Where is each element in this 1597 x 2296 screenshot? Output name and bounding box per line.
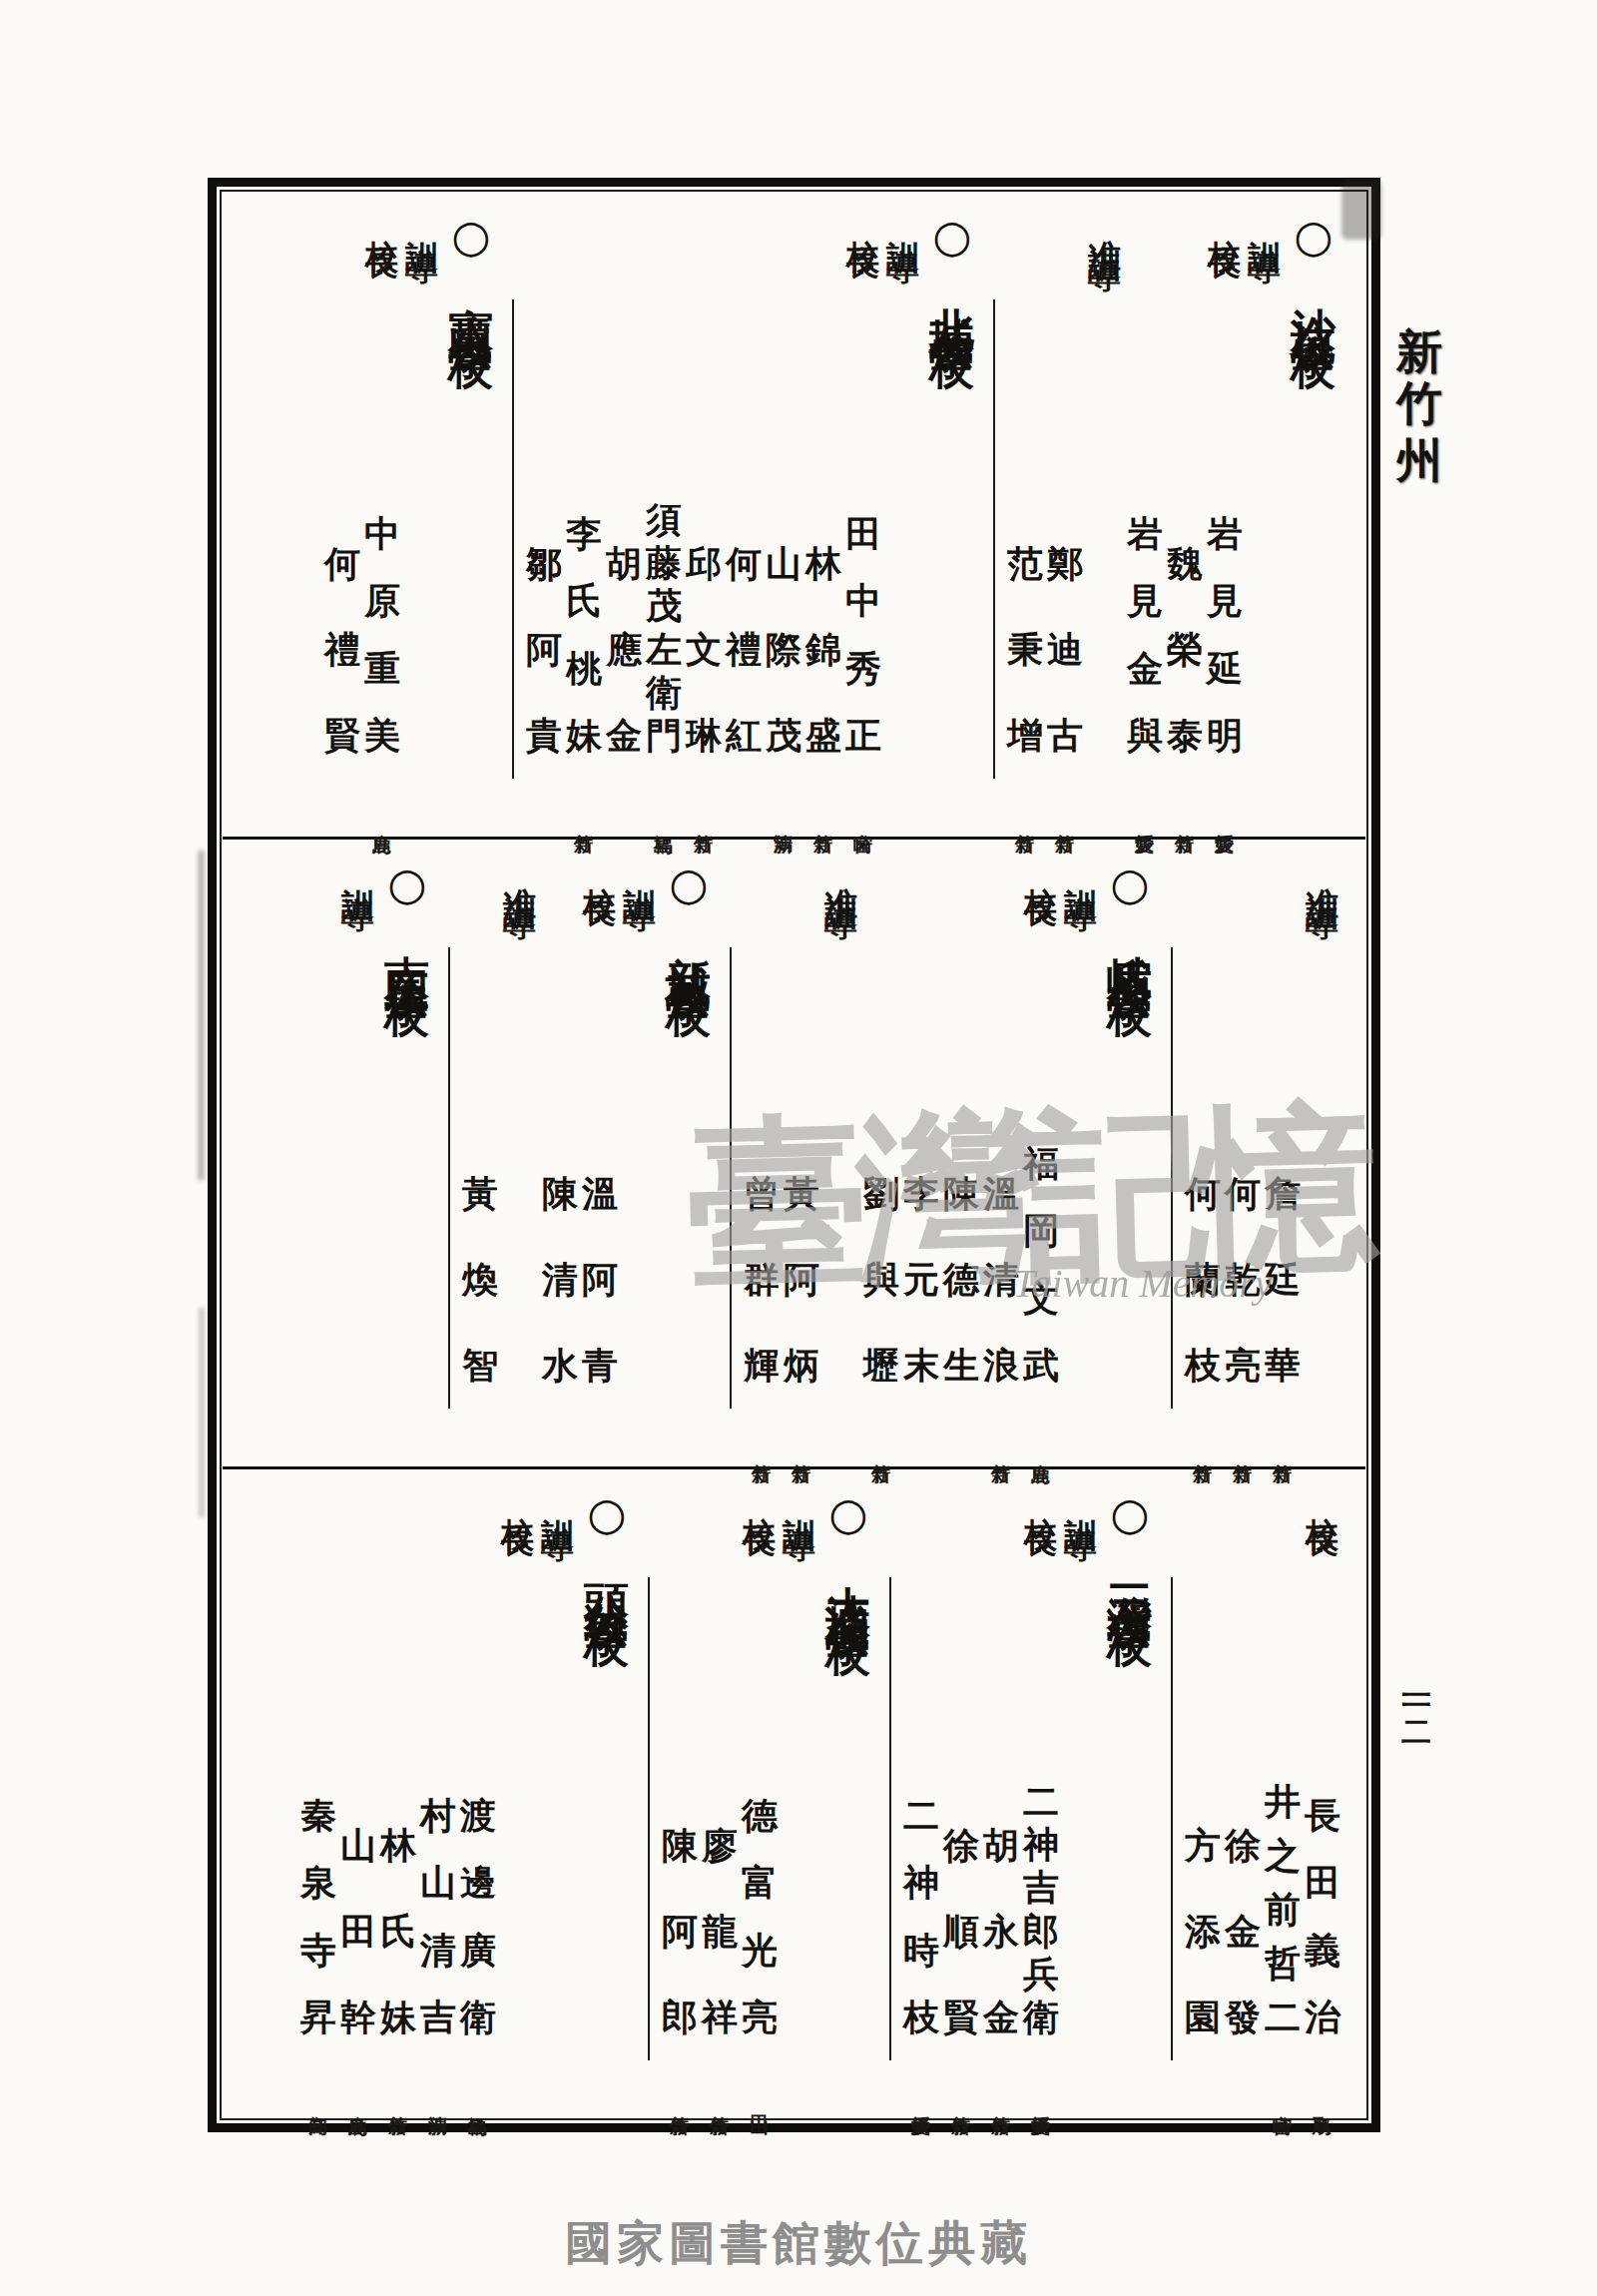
role-label: 訓導 [342, 861, 375, 877]
staff-column: 廖龍祥新竹 [701, 1485, 739, 2110]
section-divider-line [648, 1577, 650, 2060]
staff-column: 須藤茂左衛門福島 [645, 208, 683, 829]
teacher-name: 陳阿郎 [662, 1827, 698, 2034]
section-divider-line [448, 947, 450, 1409]
section-divider [444, 856, 452, 1458]
teacher-name: 范秉增 [1007, 545, 1043, 753]
scan-smudge [199, 1308, 205, 1517]
role-label: 訓導 [1065, 861, 1098, 877]
page-frame: ○沙坑公學校訓導校長岩見延明愛媛魏榮泰新竹岩見金與愛媛准訓導鄭迪古新竹范秉增新竹… [208, 178, 1380, 2132]
role-label: 訓導 [624, 861, 657, 877]
teacher-name: 岩見延明 [1207, 515, 1243, 753]
school-header-text: ○寶山公學校 [449, 210, 494, 316]
role-label-column: 准訓導 [822, 856, 860, 1458]
origin-note: 新竹 [575, 819, 594, 821]
school-header: ○南庄公學校 [380, 856, 434, 1458]
page-number: 一一二 [1395, 1679, 1436, 1709]
teacher-name: 山田幹 [340, 1827, 376, 2034]
role-label: 校長 [847, 214, 880, 230]
school-header-text: ○沙坑公學校 [1292, 210, 1336, 316]
staff-column: 何禮賢 [323, 208, 361, 829]
role-label-column: 准訓導 [1304, 856, 1341, 1458]
role-label-column: 准訓導 [501, 856, 539, 1458]
school-header: ○新城公學校 [662, 856, 716, 1458]
origin-note: 新潟 [429, 2100, 448, 2102]
role-label: 訓導 [887, 214, 920, 230]
teacher-name: 黃煥智 [462, 1175, 498, 1383]
role-label: 訓導 [1065, 1491, 1098, 1507]
origin-note: 新竹 [711, 2100, 730, 2102]
origin-note: 宮崎 [1274, 2100, 1293, 2102]
school-header-text: ○頭分公學校 [585, 1487, 630, 1594]
teacher-name: 方添園 [1185, 1827, 1221, 2034]
role-label-column: 訓導 [339, 856, 377, 1458]
section-divider [989, 208, 997, 829]
staff-column: 校長中原重美鹿島 [363, 208, 401, 829]
role-label: 訓導 [406, 214, 439, 230]
section-divider [1167, 1485, 1175, 2110]
teacher-name: 林錦盛 [805, 545, 841, 753]
origin-note: 愛媛 [1216, 819, 1235, 821]
school-header: ○北埔公學校 [925, 208, 979, 829]
staff-column: 何乾亮新竹 [1224, 856, 1262, 1458]
staff-column: 何禮紅 [725, 208, 763, 829]
staff-column: 邱文琳新竹 [685, 208, 723, 829]
role-label-column: 訓導 [1246, 208, 1284, 829]
staff-column: 李氏桃妹新竹 [565, 208, 603, 829]
section-divider [726, 856, 734, 1458]
staff-column: 陳德生 [942, 856, 980, 1458]
staff-column: 詹廷華新竹 [1264, 856, 1302, 1458]
origin-note: 新潟 [775, 819, 794, 821]
teacher-name: 徐金發 [1225, 1827, 1261, 2034]
origin-note: 新竹 [952, 2100, 971, 2102]
origin-note: 新竹 [1056, 819, 1075, 821]
staff-column: 徐金發 [1224, 1485, 1262, 2110]
origin-note: 新竹 [1176, 819, 1195, 821]
role-label: 准訓導 [825, 861, 858, 885]
role-label-column: 訓導 [621, 856, 659, 1458]
teacher-name: 溫阿青 [582, 1175, 618, 1383]
teacher-name: 陳德生 [943, 1175, 979, 1383]
origin-note: 鹿島 [349, 2100, 368, 2102]
section-divider-line [730, 947, 732, 1409]
origin-note: 福島 [469, 2100, 488, 2102]
origin-note: 新竹 [753, 1448, 772, 1450]
scan-smudge [198, 851, 205, 1180]
role-label: 校長 [1307, 1491, 1339, 1507]
staff-column: 校長福岡文武鹿島 [1022, 856, 1060, 1458]
teacher-name: 二神時枝 [903, 1797, 939, 2034]
origin-note: 高知 [309, 2100, 328, 2102]
scanned-document-page: ○沙坑公學校訓導校長岩見延明愛媛魏榮泰新竹岩見金與愛媛准訓導鄭迪古新竹范秉增新竹… [0, 0, 1597, 2296]
teacher-name: 詹廷華 [1265, 1175, 1301, 1383]
origin-note: 新竹 [671, 2100, 690, 2102]
origin-note: 愛媛 [1032, 2100, 1051, 2102]
role-label-column: 訓導 [884, 208, 922, 829]
origin-note: 新竹 [389, 2100, 408, 2102]
section-divider-line [889, 1577, 891, 2060]
staff-column: 徐順賢新竹 [942, 1485, 980, 2110]
role-label: 校長 [366, 214, 399, 230]
origin-note: 鳥取 [1314, 2100, 1332, 2102]
role-label: 校長 [502, 1491, 535, 1507]
teacher-name: 胡永金 [983, 1827, 1019, 2034]
staff-column: 秦泉寺昇高知 [299, 1485, 337, 2110]
section-divider [885, 1485, 893, 2110]
origin-note: 福島 [655, 819, 674, 821]
school-header-text: ○北埔公學校 [930, 210, 975, 316]
staff-column: 方添園 [1184, 1485, 1222, 2110]
teacher-name: 須藤茂左衛門 [646, 501, 682, 753]
staff-column: 曾群輝新竹 [743, 856, 781, 1458]
origin-note: 新竹 [992, 2100, 1011, 2102]
role-label: 校長 [1025, 861, 1058, 877]
teacher-name: 劉與壢 [863, 1175, 899, 1383]
role-label-column: 校長 [499, 1485, 537, 2110]
teacher-name: 渡邊廣衛 [460, 1797, 496, 2034]
school-header: ○沙坑公學校 [1287, 208, 1340, 829]
origin-note: 愛媛 [1136, 819, 1155, 821]
margin-title: 新竹州 [1389, 287, 1451, 455]
origin-note: 愛媛 [912, 2100, 931, 2102]
role-label: 校長 [1209, 214, 1242, 230]
staff-column: 校長田中秀正宮崎 [844, 208, 882, 829]
origin-note: 新竹 [814, 819, 833, 821]
origin-note: 新竹 [1274, 1448, 1293, 1450]
teacher-name: 曾群輝 [744, 1175, 780, 1383]
teacher-name: 鄭迪古 [1047, 545, 1083, 753]
role-label: 准訓導 [1089, 214, 1122, 238]
staff-column: 魏榮泰新竹 [1166, 208, 1204, 829]
school-header-text: ○南庄公學校 [385, 858, 430, 964]
section-divider-line [1171, 947, 1173, 1409]
school-header: ○寶山公學校 [444, 208, 498, 829]
staff-column: 陳阿郎新竹 [661, 1485, 699, 2110]
band-top: ○沙坑公學校訓導校長岩見延明愛媛魏榮泰新竹岩見金與愛媛准訓導鄭迪古新竹范秉增新竹… [222, 192, 1366, 837]
teacher-name: 岩見金與 [1127, 515, 1163, 753]
teacher-name: 何禮賢 [324, 545, 360, 753]
role-label: 訓導 [784, 1491, 816, 1507]
section-divider-line [512, 299, 514, 779]
teacher-name: 李元末 [903, 1175, 939, 1383]
teacher-name: 徐順賢 [943, 1827, 979, 2034]
teacher-name: 田中秀正 [845, 515, 881, 753]
origin-note: 新竹 [695, 819, 714, 821]
footer-caption: 國家圖書館數位典藏 [565, 2212, 1032, 2275]
role-label: 訓導 [1249, 214, 1282, 230]
staff-column: 校長二神吉郎兵衛愛媛 [1022, 1485, 1060, 2110]
staff-column: 校長溫阿青 [581, 856, 619, 1458]
staff-column: 范秉增新竹 [1006, 208, 1044, 829]
staff-column: 井之前哲二宮崎 [1264, 1485, 1302, 2110]
school-header: ○峨眉公學校 [1103, 856, 1157, 1458]
staff-column: 村山清吉新潟 [419, 1485, 457, 2110]
teacher-name: 邱文琳 [686, 545, 722, 753]
staff-column: 何蘭枝新竹 [1184, 856, 1222, 1458]
origin-note: 鹿島 [1032, 1448, 1051, 1450]
role-label: 准訓導 [1307, 861, 1339, 885]
school-header: ○三灣公學校 [1103, 1485, 1157, 2110]
scan-smudge [1341, 180, 1381, 240]
section-divider-line [1171, 1577, 1173, 2060]
role-label-column: 准訓導 [1086, 208, 1124, 829]
staff-column: 山際茂新潟 [765, 208, 802, 829]
teacher-name: 二神吉郎兵衛 [1023, 1783, 1059, 2034]
staff-column: 校長長田義治鳥取 [1304, 1485, 1341, 2110]
teacher-name: 福岡文武 [1023, 1145, 1059, 1383]
teacher-name: 德富光亮 [742, 1797, 778, 2034]
staff-column: 岩見金與愛媛 [1126, 208, 1164, 829]
teacher-name: 長田義治 [1305, 1797, 1340, 2034]
origin-note: 新竹 [1234, 1448, 1253, 1450]
teacher-name: 胡應金 [606, 545, 642, 753]
role-label: 校長 [744, 1491, 777, 1507]
origin-note: 山口 [751, 2100, 770, 2102]
section-divider-line [993, 299, 995, 779]
teacher-name: 李氏桃妹 [566, 515, 602, 753]
staff-column: 山田幹鹿島 [339, 1485, 377, 2110]
origin-note: 新竹 [1194, 1448, 1213, 1450]
school-header-text: ○峨眉公學校 [1108, 858, 1153, 964]
role-label: 准訓導 [504, 861, 537, 885]
staff-column: 校長岩見延明愛媛 [1206, 208, 1244, 829]
role-label-column: 訓導 [781, 1485, 818, 2110]
staff-column: 鄒阿貴 [525, 208, 563, 829]
teacher-name: 溫清浪 [983, 1175, 1019, 1383]
role-label-column: 訓導 [539, 1485, 577, 2110]
role-label: 校長 [584, 861, 617, 877]
section-divider [644, 1485, 652, 2110]
role-label-column: 訓導 [1062, 856, 1100, 1458]
role-label: 訓導 [542, 1491, 575, 1507]
staff-column: 林氏妹新竹 [379, 1485, 417, 2110]
band-middle: 准訓導詹廷華新竹何乾亮新竹何蘭枝新竹○峨眉公學校訓導校長福岡文武鹿島溫清浪新竹陳… [222, 840, 1366, 1466]
teacher-name: 中原重美 [364, 515, 400, 753]
staff-column: 溫清浪新竹 [982, 856, 1020, 1458]
teacher-name: 廖龍祥 [702, 1827, 738, 2034]
origin-note: 新竹 [992, 1448, 1011, 1450]
teacher-name: 魏榮泰 [1167, 545, 1203, 753]
staff-column: 胡永金新竹 [982, 1485, 1020, 2110]
role-label: 校長 [1025, 1491, 1058, 1507]
origin-note: 新竹 [872, 1448, 891, 1450]
school-header: ○大湳埔公學校 [821, 1485, 875, 2110]
staff-column: 胡應金 [605, 208, 643, 829]
staff-column: 李元末 [902, 856, 940, 1458]
role-label-column: 訓導 [403, 208, 441, 829]
origin-note: 新竹 [793, 1448, 811, 1450]
teacher-name: 黃阿炳 [784, 1175, 819, 1383]
teacher-name: 村山清吉 [420, 1797, 456, 2034]
origin-note: 新竹 [1016, 819, 1035, 821]
school-header-text: ○新城公學校 [667, 858, 712, 964]
staff-column: 二神時枝愛媛 [902, 1485, 940, 2110]
teacher-name: 井之前哲二 [1265, 1783, 1301, 2034]
teacher-name: 鄒阿貴 [526, 545, 562, 753]
staff-column: 黃煥智 [461, 856, 499, 1458]
staff-column: 渡邊廣衛福島 [459, 1485, 497, 2110]
staff-column: 陳清水 [541, 856, 579, 1458]
section-divider [508, 208, 516, 829]
school-header-text: ○三灣公學校 [1108, 1487, 1153, 1594]
page-frame-inner-border: ○沙坑公學校訓導校長岩見延明愛媛魏榮泰新竹岩見金與愛媛准訓導鄭迪古新竹范秉增新竹… [220, 190, 1368, 2120]
origin-note: 鹿島 [373, 819, 392, 821]
school-header: ○頭分公學校 [580, 1485, 634, 2110]
role-label-column: 訓導 [1062, 1485, 1100, 2110]
teacher-name: 陳清水 [542, 1175, 578, 1383]
staff-column: 林錦盛新竹 [804, 208, 842, 829]
section-divider [1167, 856, 1175, 1458]
school-header-text: ○大湳埔公學校 [826, 1487, 871, 1603]
teacher-name: 秦泉寺昇 [300, 1797, 336, 2034]
origin-note: 宮崎 [854, 819, 873, 821]
teacher-name: 林氏妹 [380, 1827, 416, 2034]
teacher-name: 何乾亮 [1225, 1175, 1261, 1383]
staff-column: 校長德富光亮山口 [741, 1485, 779, 2110]
staff-column: 黃阿炳新竹 [783, 856, 820, 1458]
teacher-name: 何禮紅 [726, 545, 762, 753]
staff-column: 劉與壢新竹 [862, 856, 900, 1458]
band-bottom: 校長長田義治鳥取井之前哲二宮崎徐金發方添園○三灣公學校訓導校長二神吉郎兵衛愛媛胡… [222, 1469, 1366, 2118]
teacher-name: 山際茂 [766, 545, 801, 753]
staff-column: 鄭迪古新竹 [1046, 208, 1084, 829]
teacher-name: 何蘭枝 [1185, 1175, 1221, 1383]
